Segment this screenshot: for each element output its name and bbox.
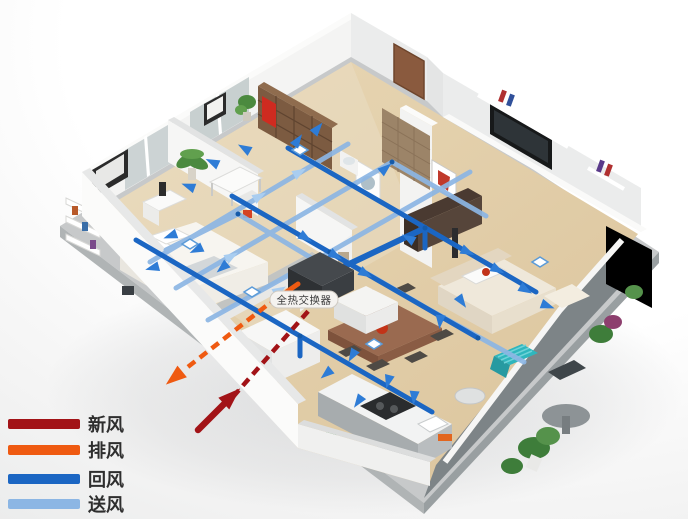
- legend-swatch-fresh-air: [8, 419, 80, 429]
- legend-swatch-return-air: [8, 474, 80, 484]
- floorplan-svg: 全热交换器 新风 排风 回风 送风: [0, 0, 688, 519]
- legend-item-exhaust-air: 排风: [8, 440, 124, 461]
- heat-exchanger-label-text: 全热交换器: [277, 294, 332, 307]
- legend-swatch-supply-air: [8, 499, 80, 509]
- heat-exchanger-label: 全热交换器: [270, 291, 338, 308]
- legend-item-supply-air: 送风: [8, 494, 124, 515]
- side-table: [455, 388, 485, 404]
- legend-label-fresh-air: 新风: [88, 414, 124, 435]
- ventilation-floorplan-illustration: 全热交换器 新风 排风 回风 送风: [0, 0, 688, 519]
- legend-label-supply-air: 送风: [87, 494, 124, 515]
- legend-label-exhaust-air: 排风: [88, 440, 124, 461]
- legend-label-return-air: 回风: [88, 470, 124, 490]
- legend-swatch-exhaust-air: [8, 445, 80, 455]
- legend-item-return-air: 回风: [8, 470, 124, 490]
